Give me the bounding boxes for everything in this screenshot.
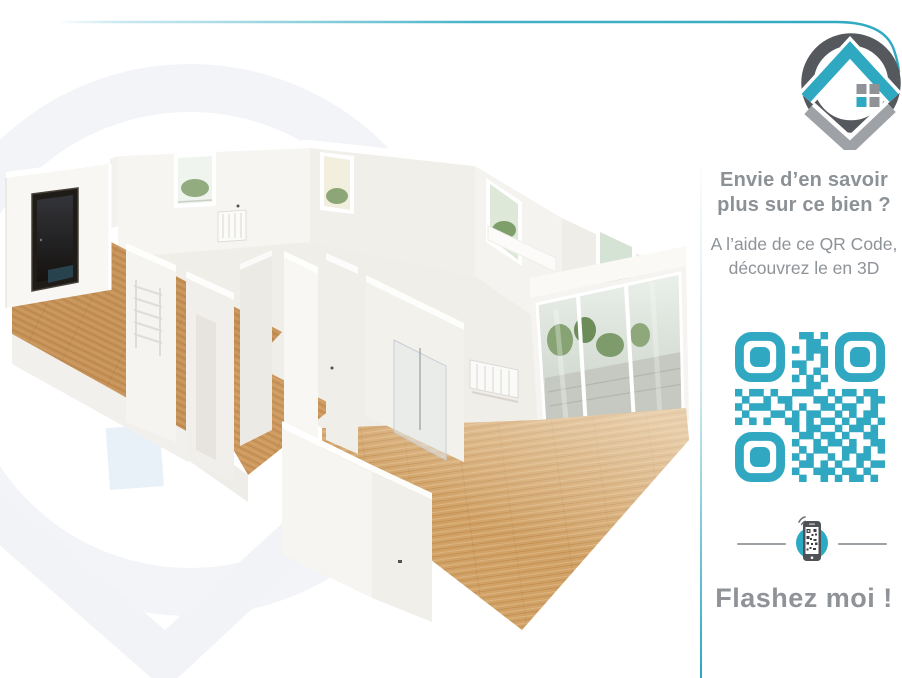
smartphone-qr-scan-icon [785,512,839,572]
qr-code [735,332,885,482]
subheadline: A l’aide de ce QR Code, découvrez le en … [706,232,902,280]
window [174,152,216,208]
sidebar-divider [700,166,702,678]
logo-window-icon [857,84,880,107]
headline-line2: plus sur ce bien ? [706,193,902,218]
headline: Envie d’en savoir plus sur ce bien ? [706,168,902,218]
headline-line1: Envie d’en savoir [706,168,902,193]
entry-door [32,188,78,291]
radiator [218,210,246,242]
subheadline-line1: A l’aide de ce QR Code, [706,232,902,256]
house-pin-logo-icon [794,26,902,150]
dollhouse-floorplan-illustration [0,130,700,678]
flyer-canvas: Envie d’en savoir plus sur ce bien ? A l… [0,0,902,678]
info-sidebar: Envie d’en savoir plus sur ce bien ? A l… [702,0,902,678]
divider-line-right [838,543,887,545]
window [320,152,354,214]
divider-line-left [737,543,786,545]
glass-doors [530,246,689,432]
subheadline-line2: découvrez le en 3D [706,256,902,280]
qr-code-icon [735,332,885,482]
cta-text: Flashez moi ! [706,583,902,613]
